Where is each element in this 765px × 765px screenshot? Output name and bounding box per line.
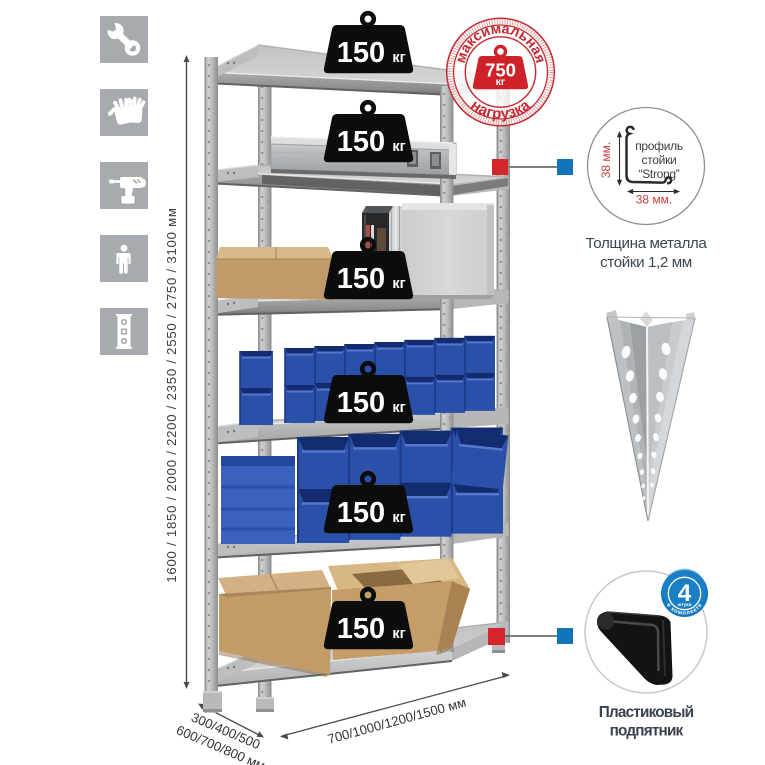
svg-text:Пластиковый: Пластиковый [599, 704, 694, 721]
svg-text:Толщина металла: Толщина металла [586, 235, 708, 252]
svg-text:150: 150 [337, 497, 385, 529]
svg-text:700/1000/1200/1500 мм: 700/1000/1200/1500 мм [326, 695, 468, 747]
svg-text:“Strong”: “Strong” [639, 167, 680, 181]
svg-text:стойки 1,2 мм: стойки 1,2 мм [600, 254, 692, 271]
svg-text:кг: кг [496, 76, 506, 88]
svg-text:профиль: профиль [635, 139, 683, 153]
svg-text:38 мм.: 38 мм. [599, 142, 613, 179]
svg-text:38 мм.: 38 мм. [636, 193, 673, 207]
svg-text:150: 150 [337, 263, 385, 295]
svg-text:кг: кг [392, 510, 405, 526]
svg-text:кг: кг [392, 626, 405, 642]
svg-text:1600 / 1850 / 2000 / 2200 / 23: 1600 / 1850 / 2000 / 2200 / 2350 / 2550 … [164, 207, 179, 582]
svg-text:150: 150 [337, 387, 385, 419]
svg-text:150: 150 [337, 37, 385, 69]
svg-text:кг: кг [392, 400, 405, 416]
svg-text:подпятник: подпятник [610, 723, 684, 740]
svg-text:стойки: стойки [642, 153, 677, 167]
svg-text:150: 150 [337, 613, 385, 645]
svg-text:кг: кг [392, 50, 405, 66]
svg-text:150: 150 [337, 126, 385, 158]
svg-text:кг: кг [392, 139, 405, 155]
svg-text:кг: кг [392, 276, 405, 292]
svg-text:штуки: штуки [678, 602, 692, 607]
